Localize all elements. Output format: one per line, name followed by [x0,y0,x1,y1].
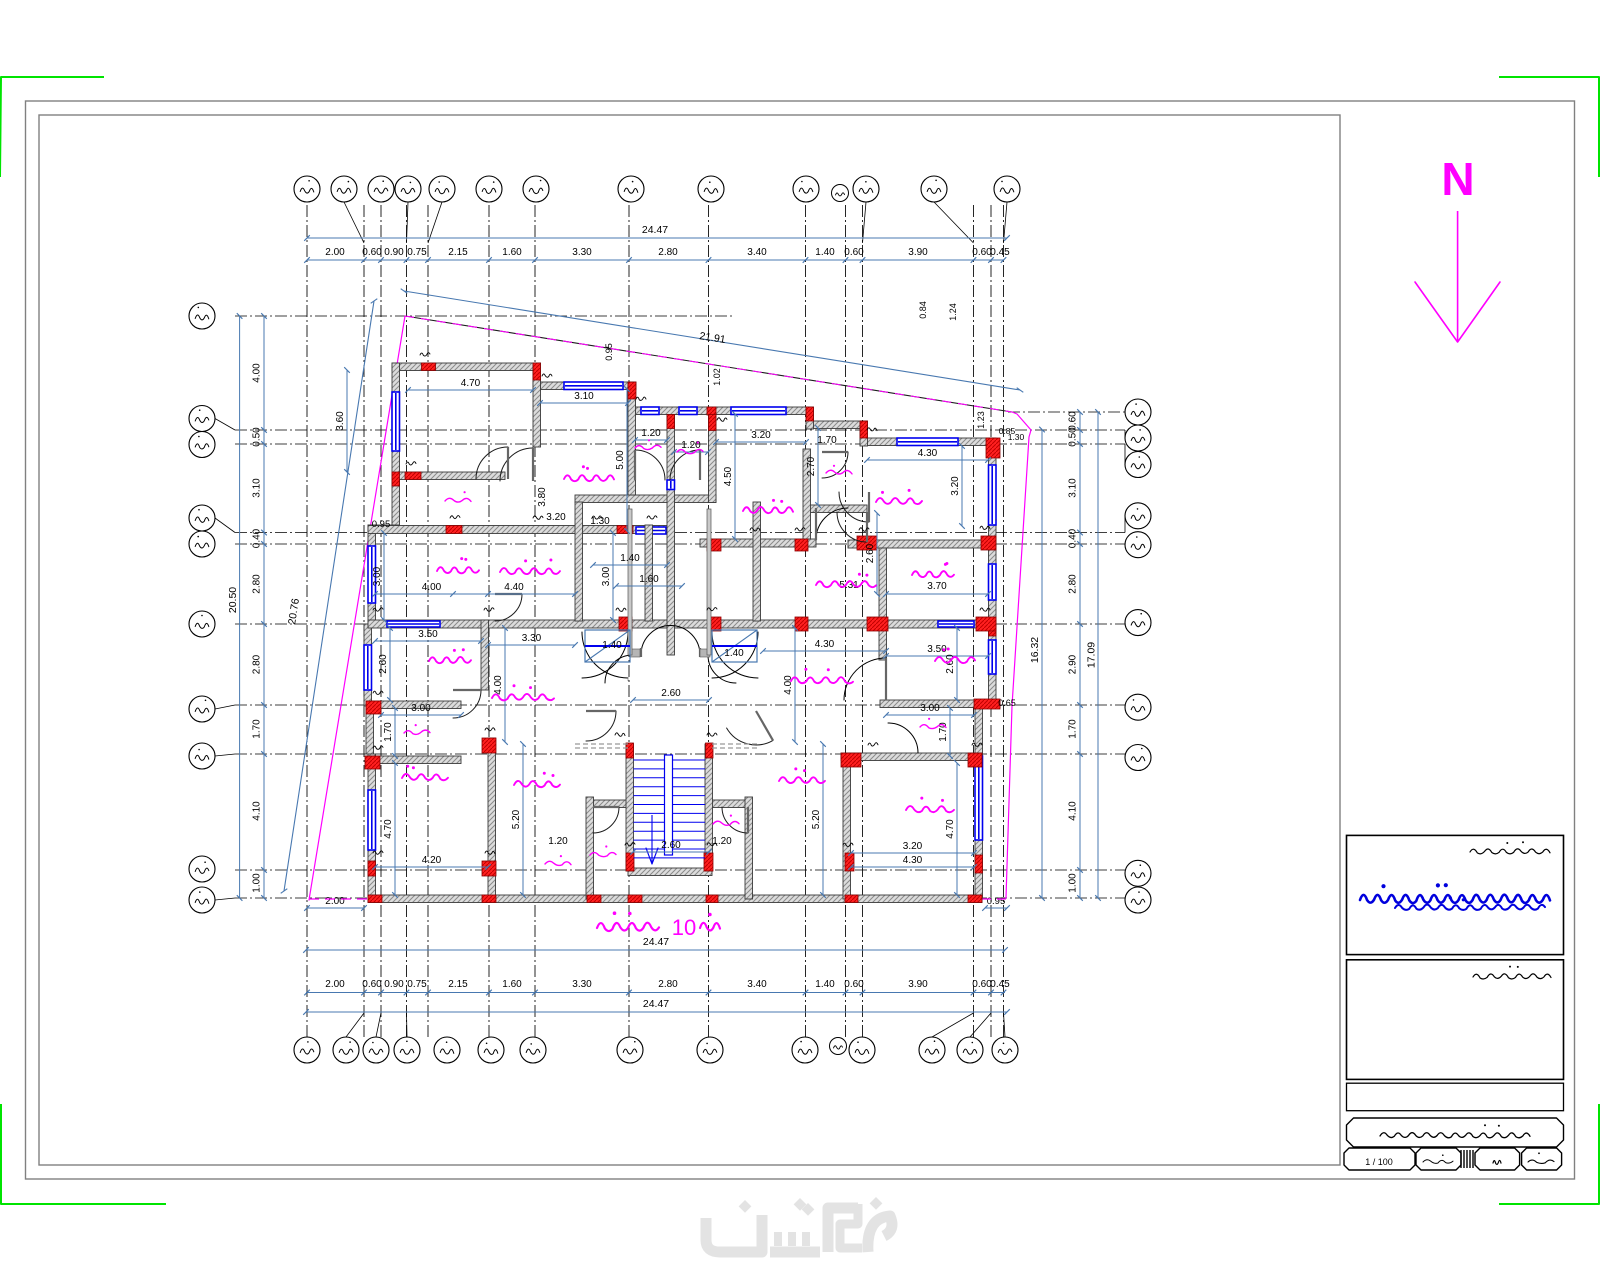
svg-text:0.40: 0.40 [1068,528,1079,548]
svg-text:0.90: 0.90 [384,979,404,990]
svg-text:1.00: 1.00 [252,873,263,893]
svg-text:0.60: 0.60 [362,979,382,990]
svg-text:4.00: 4.00 [422,582,442,593]
svg-text:1.70: 1.70 [1068,719,1079,739]
svg-text:1.70: 1.70 [252,719,263,739]
svg-text:1.60: 1.60 [502,247,522,258]
svg-text:2.80: 2.80 [658,979,678,990]
svg-text:3.10: 3.10 [252,478,263,498]
svg-text:2.00: 2.00 [325,979,345,990]
svg-text:3.20: 3.20 [751,430,771,441]
svg-text:0.60: 0.60 [972,979,992,990]
svg-text:0.40: 0.40 [252,528,263,548]
svg-text:0.60: 0.60 [844,979,864,990]
svg-text:4.50: 4.50 [723,466,734,486]
svg-text:0.75: 0.75 [407,979,427,990]
svg-text:1.02: 1.02 [712,368,722,386]
svg-text:3.00: 3.00 [920,703,940,714]
svg-text:24.47: 24.47 [643,936,669,948]
svg-text:16.32: 16.32 [1029,637,1041,663]
svg-text:3.40: 3.40 [747,247,767,258]
svg-text:0.60: 0.60 [362,247,382,258]
svg-text:0.50: 0.50 [252,427,263,447]
svg-text:4.30: 4.30 [815,639,835,650]
svg-text:3.00: 3.00 [372,566,383,586]
svg-text:1.20: 1.20 [641,428,661,439]
svg-text:3.20: 3.20 [950,476,961,496]
svg-text:0.45: 0.45 [990,247,1010,258]
svg-text:0.45: 0.45 [990,979,1010,990]
svg-text:0.75: 0.75 [407,247,427,258]
svg-text:20.50: 20.50 [227,587,239,613]
svg-text:0.65: 0.65 [998,698,1016,708]
svg-text:0.85: 0.85 [999,426,1016,436]
svg-text:2.15: 2.15 [448,247,468,258]
svg-text:0.60: 0.60 [972,247,992,258]
svg-text:0.60: 0.60 [844,247,864,258]
svg-text:24.47: 24.47 [643,998,669,1010]
svg-text:1.40: 1.40 [815,247,835,258]
svg-text:1.70: 1.70 [383,722,394,742]
svg-text:3.20: 3.20 [903,841,923,852]
svg-text:0.90: 0.90 [384,247,404,258]
svg-text:0.50: 0.50 [1068,427,1079,447]
svg-text:2.60: 2.60 [378,654,389,674]
svg-text:1.40: 1.40 [724,648,744,659]
svg-text:4.20: 4.20 [422,855,442,866]
svg-text:4.00: 4.00 [493,675,504,695]
svg-text:3.30: 3.30 [572,979,592,990]
svg-text:0.84: 0.84 [918,301,928,319]
svg-text:1.24: 1.24 [948,303,958,321]
svg-text:1.20: 1.20 [548,836,568,847]
svg-text:4.30: 4.30 [918,448,938,459]
svg-text:2.80: 2.80 [252,654,263,674]
svg-text:3.20: 3.20 [546,512,566,523]
svg-text:4.70: 4.70 [945,819,956,839]
svg-text:1.30: 1.30 [590,516,610,527]
svg-text:2.80: 2.80 [252,574,263,594]
svg-text:24.47: 24.47 [642,224,668,236]
svg-text:1.23: 1.23 [976,411,986,429]
svg-text:4.00: 4.00 [252,363,263,383]
svg-text:3.00: 3.00 [411,703,431,714]
svg-text:2.60: 2.60 [865,543,876,563]
svg-text:3.00: 3.00 [601,566,612,586]
svg-text:1.60: 1.60 [639,574,659,585]
svg-text:1.20: 1.20 [712,836,732,847]
svg-text:5.20: 5.20 [511,809,522,829]
svg-text:3.30: 3.30 [522,633,542,644]
svg-text:10: 10 [672,915,696,940]
svg-text:1.70: 1.70 [817,435,837,446]
svg-text:3.60: 3.60 [335,411,346,431]
svg-text:0.95: 0.95 [604,343,614,361]
svg-text:5.20: 5.20 [811,809,822,829]
svg-text:1.40: 1.40 [602,640,622,651]
svg-text:1 / 100: 1 / 100 [1365,1157,1393,1167]
svg-text:3.80: 3.80 [537,487,548,507]
svg-text:4.40: 4.40 [504,582,524,593]
svg-text:4.10: 4.10 [1068,801,1079,821]
svg-text:N: N [1441,153,1474,205]
svg-text:4.70: 4.70 [383,819,394,839]
svg-text:4.70: 4.70 [461,378,481,389]
svg-text:3.30: 3.30 [572,247,592,258]
svg-text:3.10: 3.10 [574,391,594,402]
svg-text:1.00: 1.00 [1068,873,1079,893]
svg-text:2.60: 2.60 [661,840,681,851]
svg-text:2.90: 2.90 [1068,654,1079,674]
svg-text:2.70: 2.70 [806,456,817,476]
svg-text:1.60: 1.60 [502,979,522,990]
svg-text:0.95: 0.95 [372,519,391,530]
svg-text:4.30: 4.30 [903,855,923,866]
svg-text:2.15: 2.15 [448,979,468,990]
svg-text:1.40: 1.40 [815,979,835,990]
svg-text:2.00: 2.00 [325,247,345,258]
svg-text:0.95: 0.95 [987,896,1006,907]
svg-text:3.90: 3.90 [908,247,928,258]
svg-text:2.80: 2.80 [658,247,678,258]
svg-text:3.40: 3.40 [747,979,767,990]
svg-text:17.09: 17.09 [1086,642,1098,668]
svg-text:3.10: 3.10 [1068,478,1079,498]
svg-text:3.50: 3.50 [418,629,438,640]
svg-text:3.90: 3.90 [908,979,928,990]
svg-text:2.80: 2.80 [1068,574,1079,594]
svg-text:2.60: 2.60 [661,688,681,699]
svg-text:1.40: 1.40 [620,553,640,564]
svg-text:3.70: 3.70 [927,581,947,592]
svg-text:5.00: 5.00 [615,450,626,470]
svg-text:4.10: 4.10 [252,801,263,821]
svg-text:2.00: 2.00 [325,896,345,907]
